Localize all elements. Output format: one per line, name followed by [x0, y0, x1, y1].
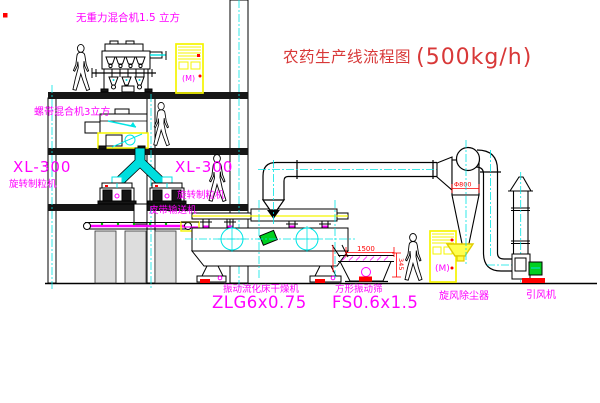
- label-granulator-center-model: XL-300: [175, 160, 233, 175]
- cyclone-dust-collector: [437, 157, 479, 261]
- label-belt-conveyor: 皮带输送机: [149, 206, 197, 216]
- label-screen-model: FS0.6x1.5: [332, 295, 418, 312]
- person-top-floor: [73, 44, 90, 90]
- label-ribbon-mixer: 螺带混合机3立方: [34, 108, 110, 118]
- cabinet-top-text: (M): [182, 74, 195, 83]
- label-gravity-free-mixer: 无重力混合机1.5 立方: [76, 13, 180, 24]
- gravity-free-mixer: [92, 41, 166, 92]
- conveyor-supports: [95, 231, 176, 283]
- process-flow-diagram: (M): [0, 0, 600, 403]
- diagram-title: 农药生产线流程图 (500kg/h): [283, 47, 532, 69]
- label-granulator-left-name: 旋转制粒机: [9, 180, 57, 190]
- title-chinese: 农药生产线流程图: [283, 48, 411, 66]
- label-dryer-model: ZLG6x0.75: [212, 295, 307, 312]
- induced-draft-fan: [512, 254, 545, 283]
- cyclone-diameter-text: Φ800: [454, 181, 472, 189]
- label-granulator-left-model: XL-300: [13, 160, 71, 175]
- fluid-bed-dryer: [192, 209, 348, 283]
- person-ground-floor: [405, 234, 422, 281]
- granulator-discharge-chute: [134, 204, 147, 224]
- screen-length-dim: 1500: [357, 245, 375, 253]
- label-cyclone: 旋风除尘器: [439, 292, 489, 302]
- title-capacity: (500kg/h): [416, 45, 532, 70]
- label-fan: 引风机: [526, 291, 556, 301]
- control-cabinet-top: [176, 44, 203, 93]
- person-second-floor: [154, 102, 170, 145]
- cabinet-bottom-text: (M): [435, 264, 450, 274]
- label-granulator-center-name: 旋转制粒机: [177, 191, 225, 201]
- red-mark: [3, 13, 8, 18]
- screen-height-dim: 345: [397, 258, 405, 270]
- rotary-granulator-left: [98, 177, 136, 204]
- control-cabinet-bottom: [430, 231, 456, 282]
